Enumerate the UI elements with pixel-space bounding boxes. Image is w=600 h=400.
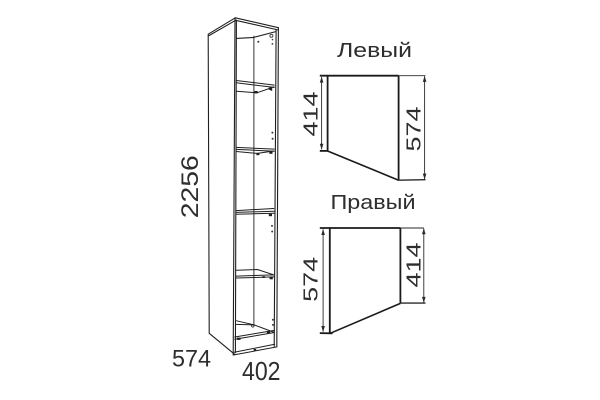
svg-text:574: 574	[172, 345, 211, 372]
svg-text:402: 402	[242, 356, 281, 386]
svg-text:2256: 2256	[177, 155, 204, 218]
svg-text:Правый: Правый	[331, 192, 416, 214]
svg-text:574: 574	[404, 107, 426, 152]
svg-text:414: 414	[301, 92, 323, 137]
svg-text:414: 414	[403, 243, 425, 288]
svg-text:Левый: Левый	[337, 40, 412, 62]
svg-text:574: 574	[301, 257, 323, 302]
